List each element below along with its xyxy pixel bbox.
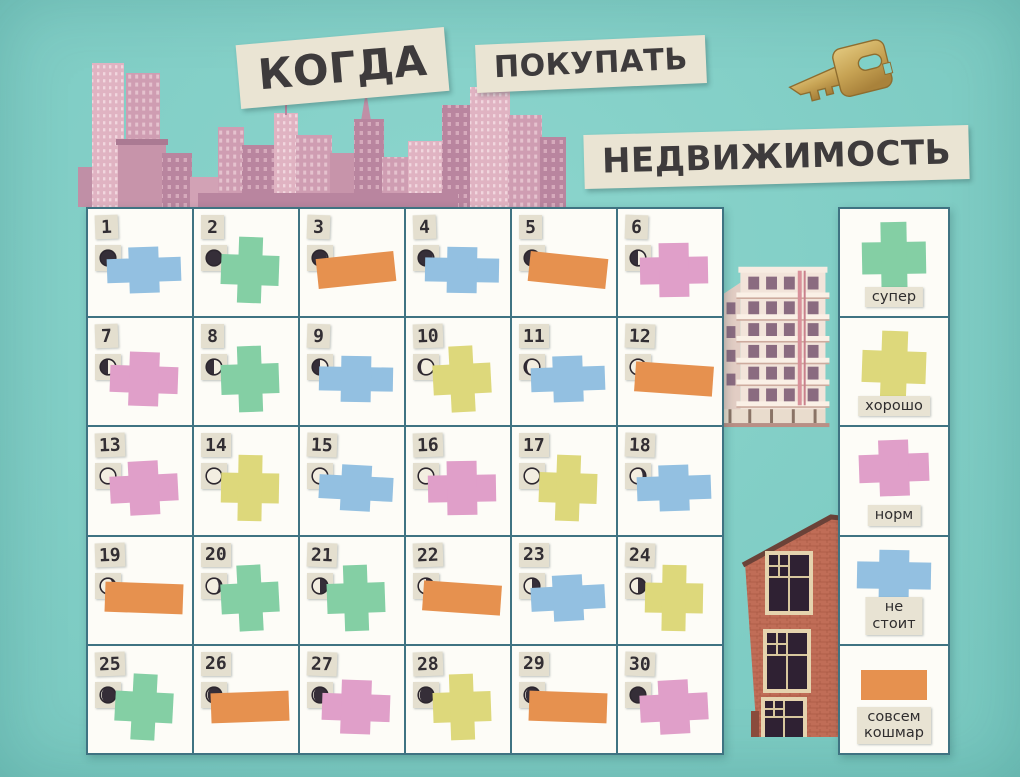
day-cell: 10 — [406, 318, 510, 425]
day-number: 4 — [413, 215, 437, 240]
day-cell: 1 — [88, 209, 192, 316]
day-cell: 2 — [194, 209, 298, 316]
day-cell: 29 — [512, 646, 616, 753]
day-cell: 30 — [618, 646, 722, 753]
day-number: 29 — [519, 652, 549, 676]
legend-label: совсем кошмар — [857, 707, 931, 744]
day-cell: 12 — [618, 318, 722, 425]
day-cell: 24 — [618, 537, 722, 644]
day-rating-shape-koshmar — [528, 251, 609, 289]
day-cell: 13 — [88, 427, 192, 534]
day-number: 19 — [95, 542, 126, 567]
day-rating-shape-ne_stoit — [530, 355, 606, 404]
day-rating-shape-koshmar — [529, 691, 608, 724]
day-number: 30 — [625, 651, 656, 676]
day-cell: 6 — [618, 209, 722, 316]
day-cell: 11 — [512, 318, 616, 425]
legend: супер хорошо норм не стоит совсем кошмар — [838, 207, 950, 755]
brick-house-image — [735, 501, 853, 737]
day-number: 15 — [307, 433, 338, 458]
day-number: 12 — [625, 324, 656, 349]
day-cell: 3 — [300, 209, 404, 316]
day-cell: 14 — [194, 427, 298, 534]
day-number: 10 — [413, 324, 444, 349]
day-number: 22 — [413, 542, 444, 567]
title-word-nedvizhimost: НЕДВИЖИМОСТЬ — [583, 125, 970, 189]
day-number: 18 — [625, 433, 656, 458]
day-rating-shape-super — [220, 236, 280, 304]
day-rating-shape-super — [219, 563, 280, 632]
day-rating-shape-koshmar — [211, 691, 290, 724]
day-number: 21 — [307, 542, 338, 567]
deco-hotel-image — [714, 243, 836, 431]
day-number: 26 — [201, 652, 231, 676]
day-number: 16 — [413, 433, 444, 458]
day-cell: 9 — [300, 318, 404, 425]
day-cell: 23 — [512, 537, 616, 644]
day-cell: 26 — [194, 646, 298, 753]
day-number: 8 — [201, 324, 224, 348]
poster: КОГДА ПОКУПАТЬ НЕДВИЖИМОСТЬ — [0, 0, 1020, 777]
day-number: 7 — [95, 324, 119, 349]
day-rating-shape-ne_stoit — [106, 246, 182, 295]
day-cell: 15 — [300, 427, 404, 534]
day-number: 28 — [413, 651, 444, 676]
day-cell: 8 — [194, 318, 298, 425]
day-rating-shape-norm — [109, 460, 180, 517]
day-cell: 18 — [618, 427, 722, 534]
day-cell: 19 — [88, 537, 192, 644]
day-cell: 21 — [300, 537, 404, 644]
legend-item: не стоит — [840, 537, 948, 644]
day-rating-shape-norm — [428, 461, 497, 516]
legend-shape-good — [861, 330, 927, 404]
key-icon — [774, 19, 920, 130]
day-cell: 28 — [406, 646, 510, 753]
day-number: 3 — [307, 215, 331, 240]
day-number: 27 — [307, 651, 338, 676]
legend-item: супер — [840, 209, 948, 316]
legend-label: хорошо — [858, 396, 930, 417]
legend-shape-norm — [858, 439, 930, 497]
day-number: 2 — [201, 215, 224, 239]
day-cell: 5 — [512, 209, 616, 316]
day-number: 5 — [519, 215, 542, 239]
day-number: 6 — [625, 215, 649, 240]
day-rating-shape-ne_stoit — [319, 356, 394, 403]
day-rating-shape-koshmar — [105, 581, 184, 614]
day-number: 13 — [95, 433, 126, 458]
day-cell: 17 — [512, 427, 616, 534]
legend-label: не стоит — [865, 597, 922, 634]
day-rating-shape-norm — [639, 678, 710, 735]
day-cell: 25 — [88, 646, 192, 753]
day-rating-shape-good — [538, 454, 598, 522]
legend-item: норм — [840, 427, 948, 534]
day-number: 24 — [625, 542, 656, 567]
day-number: 9 — [307, 324, 331, 349]
day-rating-shape-super — [326, 564, 386, 632]
day-rating-shape-norm — [321, 679, 391, 735]
day-rating-shape-norm — [109, 351, 179, 407]
day-rating-shape-ne_stoit — [425, 246, 500, 293]
day-rating-shape-koshmar — [316, 251, 397, 289]
day-cell: 7 — [88, 318, 192, 425]
day-cell: 4 — [406, 209, 510, 316]
day-rating-shape-ne_stoit — [318, 464, 394, 514]
day-cell: 16 — [406, 427, 510, 534]
day-number: 23 — [519, 543, 549, 567]
title-word-pokupat: ПОКУПАТЬ — [475, 35, 707, 93]
day-cell: 22 — [406, 537, 510, 644]
legend-shape-ne_stoit — [857, 549, 932, 600]
calendar-grid: 1 2 3 4 5 6 7 — [86, 207, 724, 755]
day-cell: 27 — [300, 646, 404, 753]
legend-shape-koshmar — [861, 670, 927, 700]
day-rating-shape-good — [645, 564, 704, 631]
legend-label: супер — [865, 287, 923, 308]
day-rating-shape-super — [113, 672, 174, 741]
day-rating-shape-good — [432, 673, 492, 741]
day-number: 11 — [519, 324, 549, 348]
day-number: 20 — [201, 543, 231, 567]
day-rating-shape-good — [221, 455, 280, 522]
day-rating-shape-ne_stoit — [636, 464, 712, 513]
legend-item: совсем кошмар — [840, 646, 948, 753]
day-rating-shape-super — [220, 345, 280, 413]
day-rating-shape-norm — [640, 243, 709, 298]
legend-shape-super — [861, 221, 926, 294]
day-rating-shape-koshmar — [422, 580, 502, 615]
legend-item: хорошо — [840, 318, 948, 425]
legend-label: норм — [868, 505, 921, 526]
day-rating-shape-ne_stoit — [530, 573, 606, 623]
day-number: 1 — [95, 215, 119, 240]
day-cell: 20 — [194, 537, 298, 644]
day-rating-shape-koshmar — [634, 362, 714, 397]
day-rating-shape-good — [431, 345, 492, 414]
